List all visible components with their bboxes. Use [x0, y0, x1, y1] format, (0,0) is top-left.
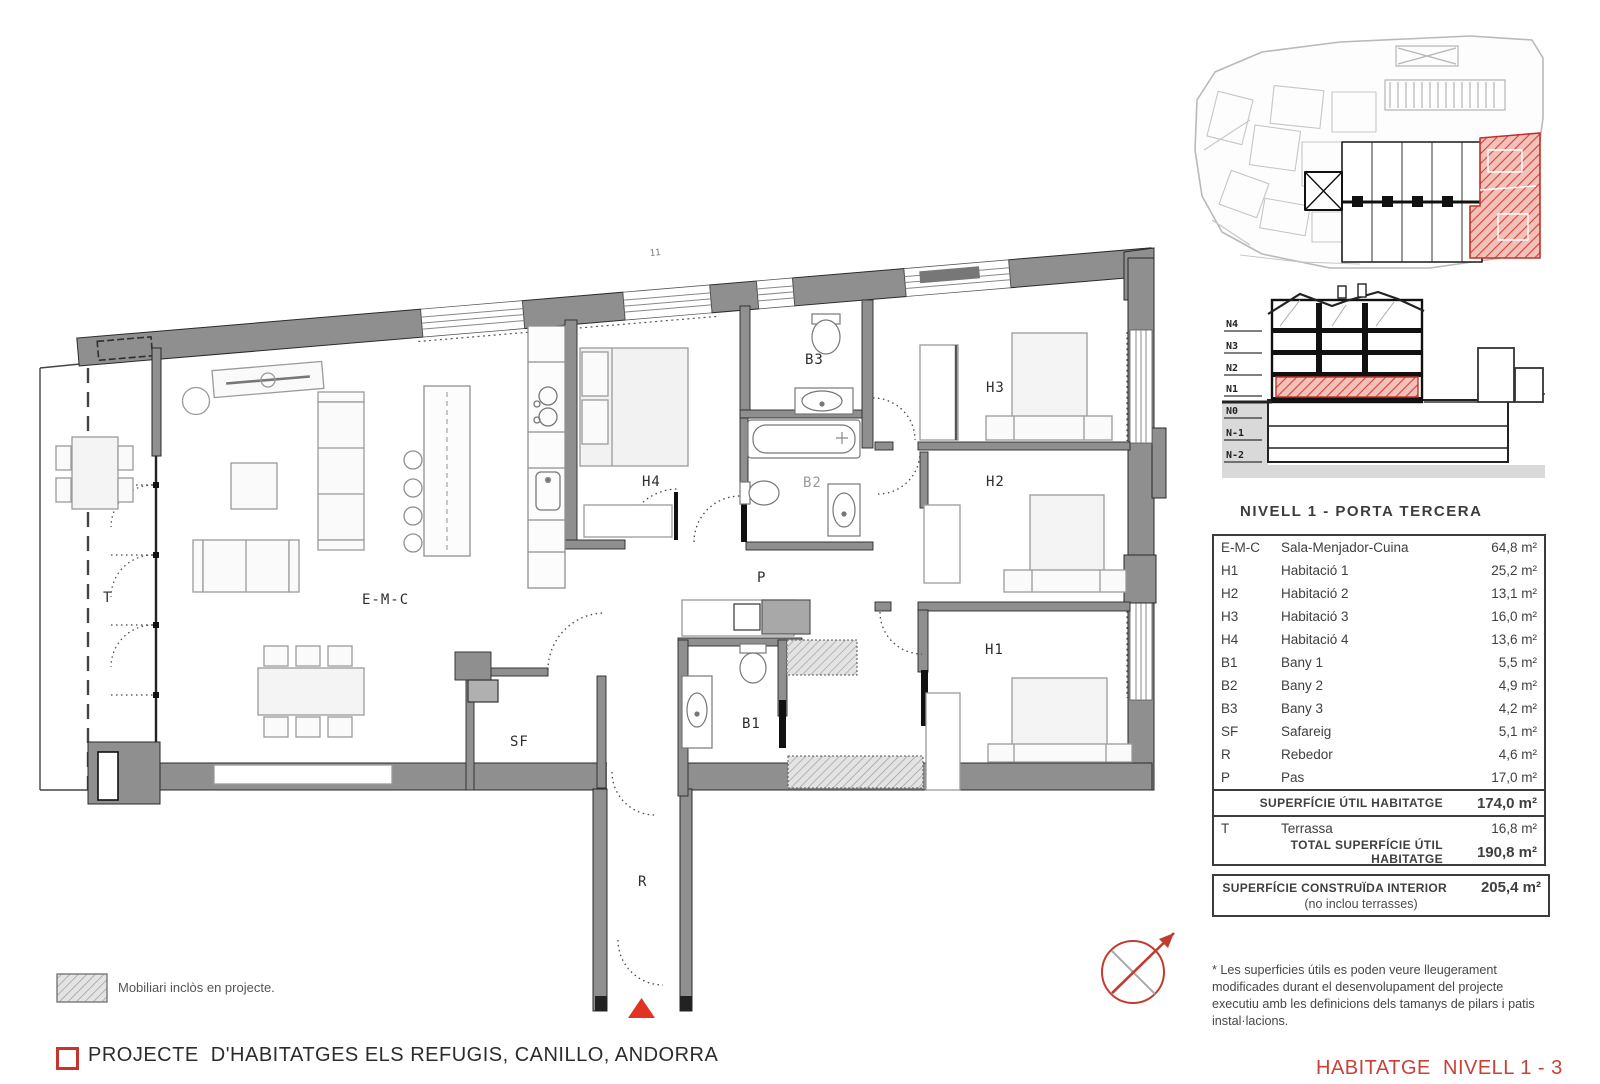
section-diagram: N4N3N2N1N0N-1N-2	[1222, 284, 1545, 478]
area-table-cell: Safareig	[1281, 724, 1455, 739]
plan-title: NIVELL 1 - PORTA TERCERA	[1240, 503, 1482, 520]
area-table-cell: H2	[1221, 586, 1281, 601]
terrace-door-wall	[111, 348, 161, 742]
wardrobe-hatch	[787, 640, 923, 788]
area-table-cell: E-M-C	[1221, 540, 1281, 555]
terrace-row: T Terrassa 16,8 m²	[1214, 817, 1544, 840]
area-table-cell: H1	[1221, 563, 1281, 578]
area-table-cell: 13,1 m²	[1455, 586, 1537, 601]
entry-corridor-walls	[593, 789, 692, 1011]
room-label-h1: H1	[985, 642, 1004, 658]
area-table-row: B1Bany 15,5 m²	[1214, 651, 1544, 674]
built-area-note: (no inclou terrasses)	[1214, 897, 1548, 911]
area-table-row: H1Habitació 125,2 m²	[1214, 559, 1544, 582]
area-table-cell: R	[1221, 747, 1281, 762]
room-label-h2: H2	[986, 474, 1005, 490]
area-table-row: B2Bany 24,9 m²	[1214, 674, 1544, 697]
area-table-row: B3Bany 34,2 m²	[1214, 697, 1544, 720]
subtotal-row: SUPERFÍCIE ÚTIL HABITATGE 174,0 m²	[1214, 789, 1544, 815]
site-plan-thumbnail	[1195, 36, 1543, 268]
north-arrow-icon	[1102, 933, 1174, 1003]
area-table-row: H3Habitació 316,0 m²	[1214, 605, 1544, 628]
subtotal-label: SUPERFÍCIE ÚTIL HABITATGE	[1221, 796, 1453, 810]
east-wall	[1124, 248, 1166, 790]
area-table-cell: Bany 1	[1281, 655, 1455, 670]
section-highlight-n1	[1276, 377, 1418, 397]
area-table-cell: B2	[1221, 678, 1281, 693]
room-label-h3: H3	[986, 380, 1005, 396]
built-area-box: SUPERFÍCIE CONSTRUÏDA INTERIOR 205,4 m² …	[1212, 874, 1550, 917]
area-table-cell: 64,8 m²	[1455, 540, 1537, 555]
area-table-cell: B1	[1221, 655, 1281, 670]
room-label-h4: H4	[642, 474, 661, 490]
dimension-annotation: 11	[649, 248, 661, 259]
section-level-label-n2: N2	[1226, 363, 1238, 374]
area-table-cell: 16,0 m²	[1455, 609, 1537, 624]
area-table-cell: 4,9 m²	[1455, 678, 1537, 693]
room-label-p: P	[757, 570, 766, 586]
area-table-cell: H3	[1221, 609, 1281, 624]
floor-plan: 11 TE-M-CSFB1PRH4B3B2H3H2H1	[40, 248, 1166, 1018]
furniture-legend-label: Mobiliari inclòs en projecte.	[118, 980, 275, 995]
room-label-sf: SF	[510, 734, 529, 750]
area-table-cell: 4,2 m²	[1455, 701, 1537, 716]
total-value: 190,8 m²	[1453, 844, 1537, 861]
built-area-label: SUPERFÍCIE CONSTRUÏDA INTERIOR	[1221, 881, 1457, 895]
area-table-main-box: E-M-CSala-Menjador-Cuina64,8 m²H1Habitac…	[1212, 534, 1546, 817]
section-level-label-n0: N0	[1226, 406, 1238, 417]
area-table-terrace-box: T Terrassa 16,8 m² TOTAL SUPERFÍCIE ÚTIL…	[1212, 817, 1546, 866]
section-level-label-n-1: N-1	[1226, 428, 1244, 439]
total-label: TOTAL SUPERFÍCIE ÚTIL HABITATGE	[1221, 838, 1453, 866]
area-table-cell: 4,6 m²	[1455, 747, 1537, 762]
furniture-bedrooms	[580, 333, 1132, 790]
footnote: * Les superficies útils es poden veure l…	[1212, 962, 1548, 1030]
site-highlighted-unit	[1470, 133, 1540, 258]
project-logo-icon	[56, 1047, 79, 1070]
area-table-cell: Sala-Menjador-Cuina	[1281, 540, 1455, 555]
terrace-area: 16,8 m²	[1455, 821, 1537, 836]
area-table-cell: Rebedor	[1281, 747, 1455, 762]
area-table-row: H2Habitació 213,1 m²	[1214, 582, 1544, 605]
area-table-row: RRebedor4,6 m²	[1214, 743, 1544, 766]
area-table-cell: Habitació 2	[1281, 586, 1455, 601]
area-table: E-M-CSala-Menjador-Cuina64,8 m²H1Habitac…	[1212, 534, 1546, 866]
terrace-name: Terrassa	[1281, 821, 1455, 836]
sheet-label: HABITATGE NIVELL 1 - 3	[1316, 1057, 1563, 1080]
built-area-value: 205,4 m²	[1457, 879, 1541, 896]
area-table-cell: Habitació 4	[1281, 632, 1455, 647]
furniture-living	[56, 361, 392, 784]
section-level-label-n-2: N-2	[1226, 450, 1244, 461]
area-table-cell: 17,0 m²	[1455, 770, 1537, 785]
area-table-cell: Habitació 3	[1281, 609, 1455, 624]
area-table-cell: 5,5 m²	[1455, 655, 1537, 670]
area-table-row: SFSafareig5,1 m²	[1214, 720, 1544, 743]
plan-annotations: 11	[649, 248, 661, 259]
terrace-boundary	[40, 344, 90, 790]
section-level-label-n3: N3	[1226, 341, 1238, 352]
room-label-e-m-c: E-M-C	[362, 592, 409, 608]
room-label-b2: B2	[803, 475, 822, 491]
area-table-cell: Bany 2	[1281, 678, 1455, 693]
room-label-b1: B1	[742, 716, 761, 732]
area-table-cell: P	[1221, 770, 1281, 785]
furniture-kitchen	[404, 326, 565, 588]
area-table-rows: E-M-CSala-Menjador-Cuina64,8 m²H1Habitac…	[1214, 536, 1544, 789]
project-title: PROJECTE D'HABITATGES ELS REFUGIS, CANIL…	[88, 1044, 718, 1067]
room-label-t: T	[103, 590, 112, 606]
area-table-row: PPas17,0 m²	[1214, 766, 1544, 789]
subtotal-value: 174,0 m²	[1453, 795, 1537, 812]
area-table-cell: 5,1 m²	[1455, 724, 1537, 739]
terrace-code: T	[1221, 821, 1281, 836]
area-table-cell: SF	[1221, 724, 1281, 739]
area-table-cell: Bany 3	[1281, 701, 1455, 716]
area-table-cell: H4	[1221, 632, 1281, 647]
area-table-row: E-M-CSala-Menjador-Cuina64,8 m²	[1214, 536, 1544, 559]
section-level-label-n4: N4	[1226, 319, 1238, 330]
room-label-r: R	[638, 874, 647, 890]
area-table-cell: B3	[1221, 701, 1281, 716]
room-label-b3: B3	[805, 352, 824, 368]
area-table-row: H4Habitació 413,6 m²	[1214, 628, 1544, 651]
area-table-cell: 25,2 m²	[1455, 563, 1537, 578]
area-table-cell: 13,6 m²	[1455, 632, 1537, 647]
furniture-legend-swatch	[57, 974, 107, 1002]
section-level-label-n1: N1	[1226, 384, 1238, 395]
area-table-cell: Habitació 1	[1281, 563, 1455, 578]
area-table-cell: Pas	[1281, 770, 1455, 785]
entry-arrow-icon	[628, 998, 655, 1018]
floor-plan-sheet: N4N3N2N1N0N-1N-2	[0, 0, 1600, 1084]
total-row: TOTAL SUPERFÍCIE ÚTIL HABITATGE 190,8 m²	[1214, 840, 1544, 864]
